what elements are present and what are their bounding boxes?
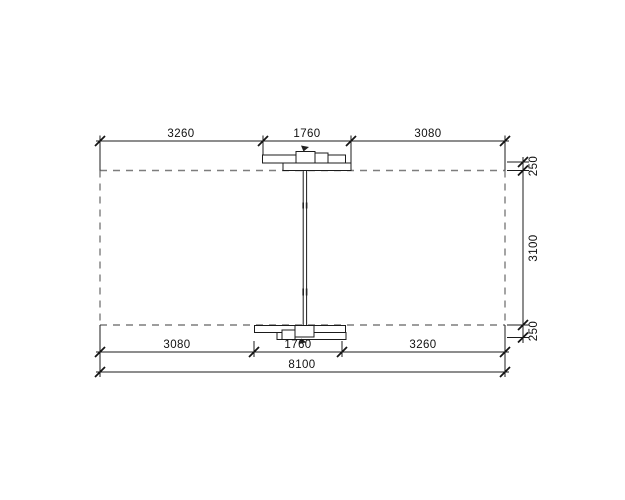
- dim-label-bottom-right: 3260: [409, 339, 436, 351]
- bottom-connector-block-right: [295, 326, 314, 338]
- right-dimension-column: 250 3100 250: [507, 156, 540, 343]
- dim-label-top-right: 3080: [414, 128, 441, 140]
- dimension-drawing: 3260 1760 3080 3080 1760 3260 8100 250 3…: [0, 0, 625, 500]
- dim-label-right-bottom: 250: [528, 321, 540, 341]
- dim-label-total-width: 8100: [288, 359, 315, 371]
- dim-label-bottom-left: 3080: [163, 339, 190, 351]
- top-lower-plate: [283, 163, 351, 171]
- technical-drawing-canvas: 3260 1760 3080 3080 1760 3260 8100 250 3…: [0, 0, 625, 500]
- dim-label-bottom-center: 1760: [284, 339, 311, 351]
- dim-label-right-middle: 3100: [528, 234, 540, 261]
- top-connector-block-right: [315, 153, 328, 163]
- dashed-outline-rectangle: [100, 171, 505, 326]
- beam-web: [302, 171, 307, 326]
- dim-label-top-center: 1760: [293, 128, 320, 140]
- dim-label-right-top: 250: [528, 156, 540, 176]
- top-flange-plates: [263, 146, 352, 171]
- dim-label-top-left: 3260: [167, 128, 194, 140]
- top-connector-block-left: [296, 152, 315, 164]
- top-center-mark: [301, 146, 309, 152]
